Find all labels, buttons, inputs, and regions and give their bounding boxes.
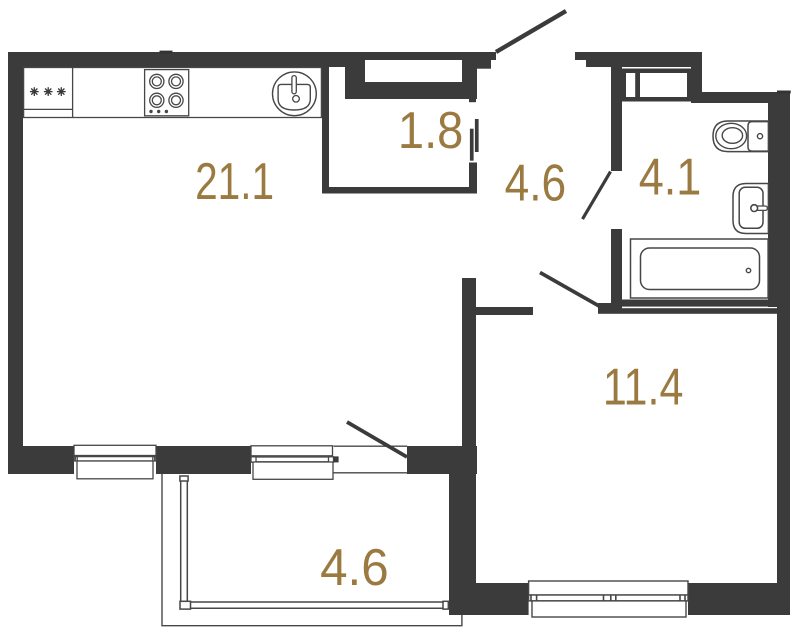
- svg-text:11.4: 11.4: [603, 358, 684, 416]
- svg-text:1.8: 1.8: [398, 101, 463, 160]
- svg-text:4.1: 4.1: [639, 149, 702, 207]
- svg-text:21.1: 21.1: [195, 152, 274, 210]
- svg-text:4.6: 4.6: [320, 538, 389, 597]
- svg-text:4.6: 4.6: [505, 154, 567, 212]
